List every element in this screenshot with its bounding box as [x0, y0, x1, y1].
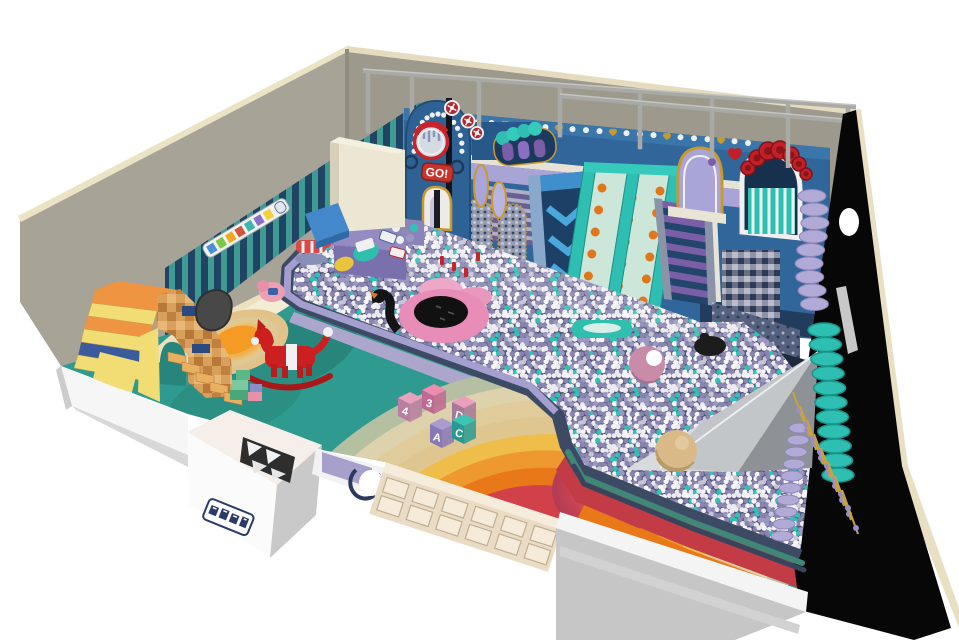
- svg-text:GO!: GO!: [425, 165, 449, 181]
